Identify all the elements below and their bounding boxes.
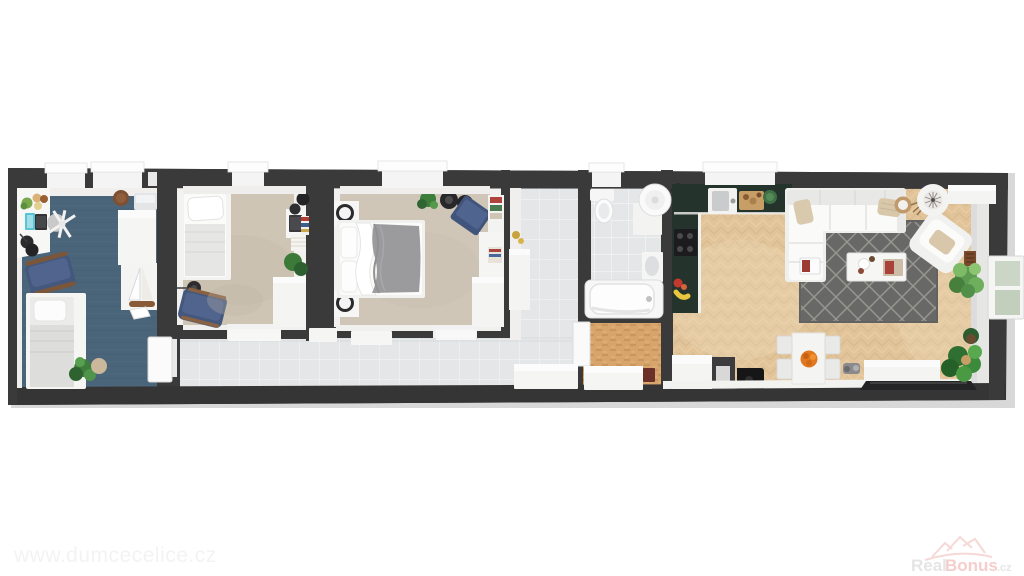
- svg-text:Bonus: Bonus: [945, 556, 998, 575]
- svg-text:www.dumcecelice.cz: www.dumcecelice.cz: [13, 544, 217, 567]
- svg-text:.cz: .cz: [997, 562, 1012, 574]
- svg-text:Real: Real: [911, 556, 947, 575]
